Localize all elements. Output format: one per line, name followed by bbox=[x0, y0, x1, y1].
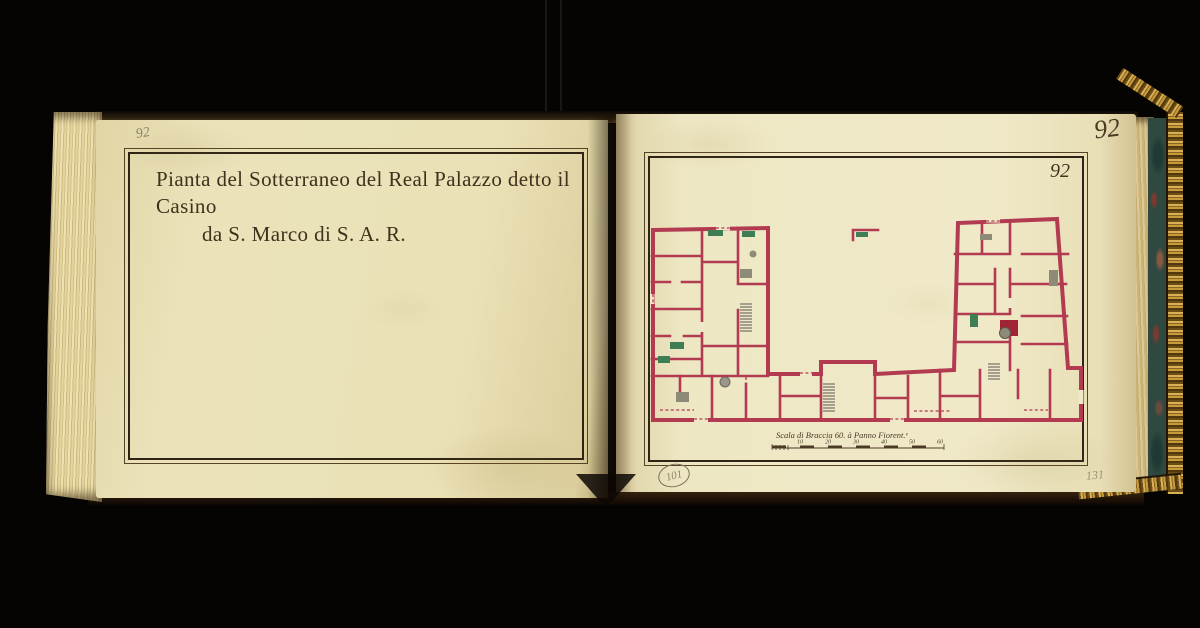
floor-plan-drawing: Scala di Braccia 60. à Panno Fiorent.ᵉ bbox=[650, 214, 1084, 462]
pencil-folio-number: 92 bbox=[135, 125, 152, 143]
scale-tick-label: 20 bbox=[825, 440, 831, 446]
plate-title: Pianta del Sotterraneo del Real Palazzo … bbox=[156, 166, 582, 248]
scale-bar: Scala di Braccia 60. à Panno Fiorent.ᵉ bbox=[772, 430, 944, 450]
right-page: 92 92 bbox=[616, 114, 1136, 492]
gutter-bottom-shadow bbox=[576, 474, 636, 508]
background-streak bbox=[560, 0, 562, 120]
scale-tick-label: 60 bbox=[937, 440, 943, 446]
plate-title-line1: Pianta del Sotterraneo del Real Palazzo … bbox=[156, 167, 570, 218]
page-stack-fore-edge bbox=[46, 112, 102, 502]
gilt-binding-edge bbox=[1166, 112, 1183, 494]
ink-folio-number: 92 bbox=[1092, 113, 1121, 146]
left-page: 92 Pianta del Sotterraneo del Real Palaz… bbox=[96, 120, 608, 498]
scale-tick-label: 30 bbox=[852, 440, 859, 446]
scale-caption: Scala di Braccia 60. à Panno Fiorent.ᵉ bbox=[776, 430, 909, 440]
background-streak bbox=[545, 0, 547, 120]
scanned-book-photograph: 92 Pianta del Sotterraneo del Real Palaz… bbox=[0, 0, 1200, 628]
scale-tick-label: 50 bbox=[909, 440, 915, 446]
plate-number: 92 bbox=[1050, 160, 1070, 183]
plan-plate-frame: 92 bbox=[648, 156, 1084, 462]
floor-plan: Scala di Braccia 60. à Panno Fiorent.ᵉ bbox=[650, 214, 1084, 462]
scale-tick-label: 10 bbox=[797, 440, 803, 446]
plate-title-line2: da S. Marco di S. A. R. bbox=[202, 221, 582, 248]
marbled-endpaper-edge bbox=[1148, 118, 1168, 490]
scale-tick-label: 40 bbox=[881, 439, 887, 446]
title-plate-frame: Pianta del Sotterraneo del Real Palazzo … bbox=[128, 152, 584, 460]
pencil-annotation: 131 bbox=[1085, 467, 1104, 484]
